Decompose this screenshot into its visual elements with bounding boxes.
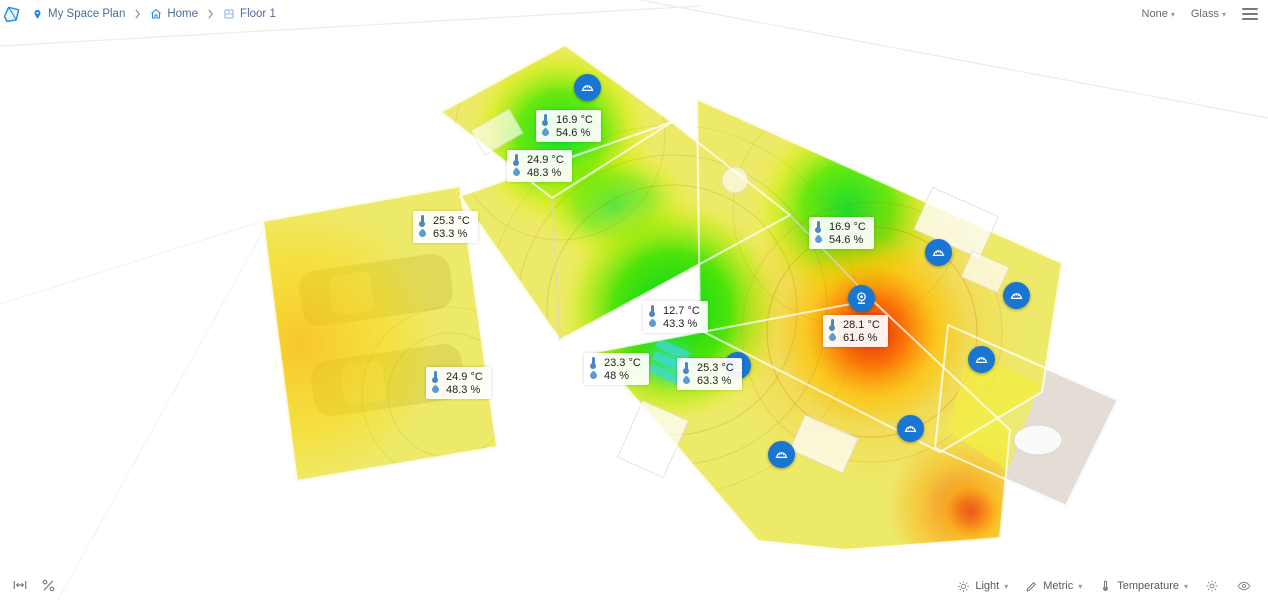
top-bar: My Space Plan Home Floor 1: [0, 0, 1268, 28]
humidity-droplet-icon: [431, 384, 440, 396]
none-dropdown[interactable]: None ▾: [1142, 8, 1175, 20]
glass-dropdown-label: Glass: [1191, 8, 1219, 20]
temperature-dropdown-label: Temperature: [1117, 580, 1179, 592]
temperature-value: 16.9 °C: [829, 221, 866, 233]
meter-device-icon[interactable]: [768, 441, 795, 468]
visibility-eye-icon[interactable]: [1236, 579, 1252, 593]
temperature-dropdown[interactable]: Temperature ▾: [1099, 580, 1188, 593]
breadcrumb-label: Floor 1: [240, 8, 276, 20]
breadcrumb-label: Home: [167, 8, 198, 20]
chevron-right-icon: [134, 9, 141, 19]
light-dropdown[interactable]: Light ▾: [957, 580, 1008, 593]
floor-icon: [223, 8, 235, 20]
breadcrumb-item-home[interactable]: Home: [150, 8, 198, 20]
temperature-value: 25.3 °C: [433, 215, 470, 227]
chevron-down-icon: ▾: [1004, 582, 1008, 591]
thermometer-icon: [541, 114, 550, 126]
none-dropdown-label: None: [1142, 8, 1168, 20]
breadcrumb-item-floor[interactable]: Floor 1: [223, 8, 276, 20]
breadcrumb-label: My Space Plan: [48, 8, 125, 20]
humidity-droplet-icon: [648, 318, 657, 330]
humidity-value: 48.3 %: [527, 167, 561, 179]
temperature-value: 23.3 °C: [604, 357, 641, 369]
humidity-value: 61.6 %: [843, 332, 877, 344]
webcam-device-icon[interactable]: [848, 285, 875, 312]
app-logo[interactable]: [2, 4, 23, 25]
humidity-value: 48 %: [604, 370, 629, 382]
meter-device-icon[interactable]: [574, 74, 601, 101]
settings-gear-icon[interactable]: [1205, 579, 1219, 593]
chevron-down-icon: ▾: [1078, 582, 1082, 591]
thermometer-icon: [814, 221, 823, 233]
sensor-reading-label[interactable]: 25.3 °C63.3 %: [677, 358, 742, 390]
glass-dropdown[interactable]: Glass ▾: [1191, 8, 1226, 20]
home-icon: [150, 8, 162, 20]
meter-device-icon[interactable]: [968, 346, 995, 373]
humidity-droplet-icon: [512, 167, 521, 179]
chevron-right-icon: [207, 9, 214, 19]
thermometer-icon: [512, 154, 521, 166]
bottom-right-toolbar: Light ▾ Metric ▾ Temperature ▾: [957, 579, 1252, 593]
light-dropdown-label: Light: [975, 580, 999, 592]
bottom-left-toolbar: [12, 577, 56, 593]
fit-width-icon[interactable]: [12, 577, 28, 593]
meter-device-icon[interactable]: [925, 239, 952, 266]
chevron-down-icon: ▾: [1222, 10, 1226, 19]
thermometer-icon: [589, 357, 598, 369]
humidity-droplet-icon: [814, 234, 823, 246]
zoom-scale-icon[interactable]: [41, 578, 56, 593]
humidity-droplet-icon: [418, 228, 427, 240]
floor-plan-3d-view[interactable]: [0, 0, 1268, 600]
temperature-value: 12.7 °C: [663, 305, 700, 317]
temperature-value: 16.9 °C: [556, 114, 593, 126]
humidity-value: 43.3 %: [663, 318, 697, 330]
sensor-reading-label[interactable]: 23.3 °C48 %: [584, 353, 649, 385]
pencil-icon: [1025, 580, 1038, 593]
view-controls: None ▾ Glass ▾: [1142, 8, 1258, 20]
metric-dropdown[interactable]: Metric ▾: [1025, 580, 1082, 593]
sensor-reading-label[interactable]: 24.9 °C48.3 %: [426, 367, 491, 399]
thermometer-icon: [682, 362, 691, 374]
temperature-value: 24.9 °C: [527, 154, 564, 166]
chevron-down-icon: ▾: [1171, 10, 1175, 19]
humidity-value: 63.3 %: [433, 228, 467, 240]
temperature-value: 24.9 °C: [446, 371, 483, 383]
humidity-droplet-icon: [828, 332, 837, 344]
sensor-reading-label[interactable]: 16.9 °C54.6 %: [536, 110, 601, 142]
light-icon: [957, 580, 970, 593]
chevron-down-icon: ▾: [1184, 582, 1188, 591]
humidity-value: 63.3 %: [697, 375, 731, 387]
breadcrumb: My Space Plan Home Floor 1: [2, 4, 276, 25]
meter-device-icon[interactable]: [1003, 282, 1030, 309]
metric-dropdown-label: Metric: [1043, 580, 1073, 592]
sensor-icon: [1099, 580, 1112, 593]
humidity-value: 54.6 %: [556, 127, 590, 139]
sensor-reading-label[interactable]: 16.9 °C54.6 %: [809, 217, 874, 249]
humidity-droplet-icon: [541, 127, 550, 139]
breadcrumb-item-space-plan[interactable]: My Space Plan: [32, 8, 125, 21]
sensor-reading-label[interactable]: 24.9 °C48.3 %: [507, 150, 572, 182]
humidity-droplet-icon: [682, 375, 691, 387]
thermometer-icon: [648, 305, 657, 317]
temperature-value: 28.1 °C: [843, 319, 880, 331]
menu-icon[interactable]: [1242, 8, 1258, 20]
location-pin-icon: [32, 8, 43, 21]
thermometer-icon: [418, 215, 427, 227]
sensor-reading-label[interactable]: 12.7 °C43.3 %: [643, 301, 708, 333]
meter-device-icon[interactable]: [897, 415, 924, 442]
sensor-reading-label[interactable]: 28.1 °C61.6 %: [823, 315, 888, 347]
sensor-reading-label[interactable]: 25.3 °C63.3 %: [413, 211, 478, 243]
humidity-droplet-icon: [589, 370, 598, 382]
thermometer-icon: [828, 319, 837, 331]
humidity-value: 54.6 %: [829, 234, 863, 246]
temperature-value: 25.3 °C: [697, 362, 734, 374]
floor-plan-app: 16.9 °C54.6 %24.9 °C48.3 %25.3 °C63.3 %1…: [0, 0, 1268, 600]
thermometer-icon: [431, 371, 440, 383]
humidity-value: 48.3 %: [446, 384, 480, 396]
